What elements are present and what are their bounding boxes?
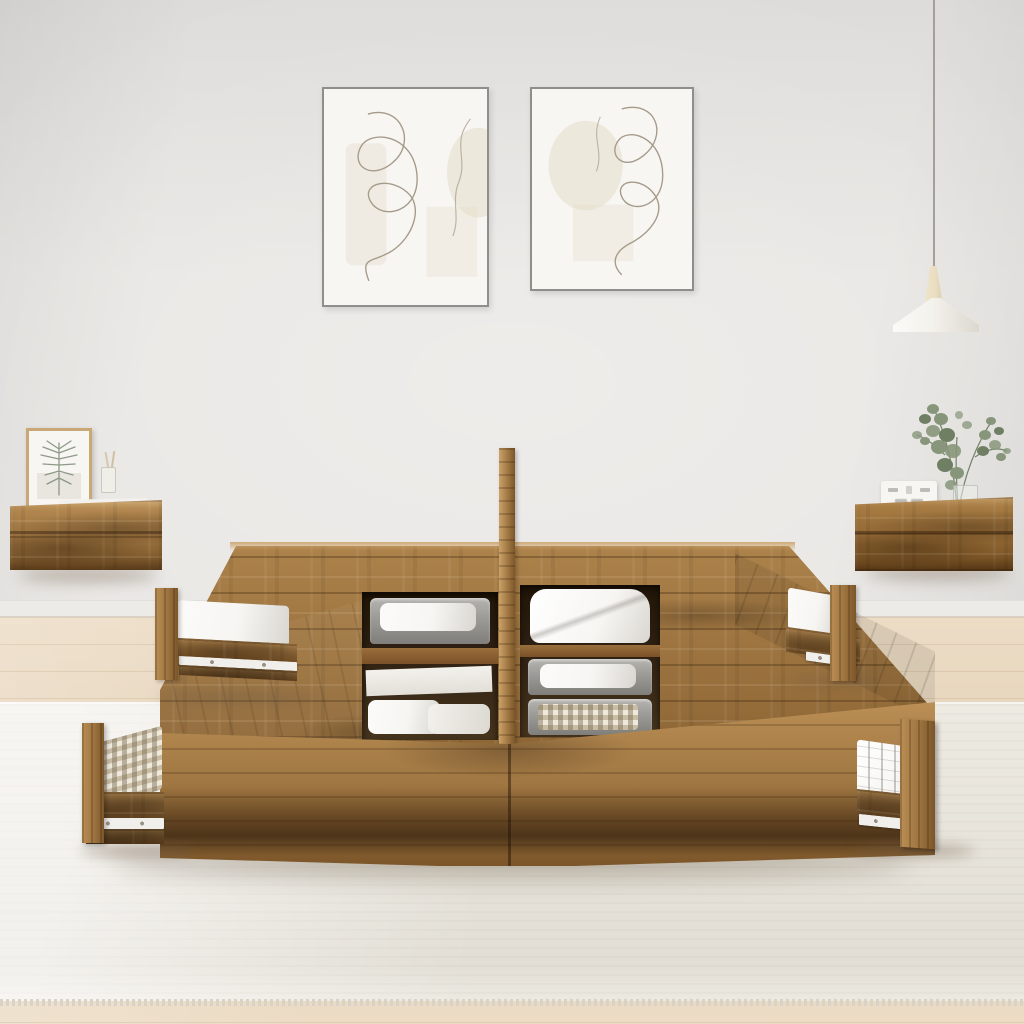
felt-basket: [370, 598, 490, 644]
folded-duvet: [530, 589, 650, 643]
drawer-side-board: [900, 719, 935, 849]
drawer-side-board: [155, 588, 178, 680]
folded-towel: [380, 603, 476, 631]
rug-fringe: [0, 999, 1024, 1006]
storage-bed-frame: [80, 448, 960, 888]
drawer-shadow: [158, 691, 318, 703]
compartment-divider: [362, 648, 498, 664]
wall-art-right: [530, 87, 694, 291]
bedroom-product-photo: [0, 0, 1024, 1024]
drawer-side-board: [82, 723, 104, 843]
compartment-divider: [520, 645, 660, 657]
abstract-line-drawing-right: [532, 89, 692, 289]
storage-compartment-left: [362, 592, 498, 740]
wall-art-left: [322, 87, 489, 307]
abstract-line-drawing-left: [324, 89, 487, 305]
storage-compartment-right: [520, 585, 660, 737]
folded-towel: [540, 664, 636, 688]
center-post: [499, 448, 515, 744]
checkered-blanket: [538, 704, 638, 730]
felt-basket: [528, 659, 652, 695]
felt-basket: [528, 699, 652, 735]
drawer-side-board: [830, 585, 856, 681]
pendant-cord: [933, 0, 935, 270]
folded-towel: [428, 704, 490, 734]
drawer-shadow: [80, 844, 195, 858]
white-storage-box: [366, 666, 493, 696]
